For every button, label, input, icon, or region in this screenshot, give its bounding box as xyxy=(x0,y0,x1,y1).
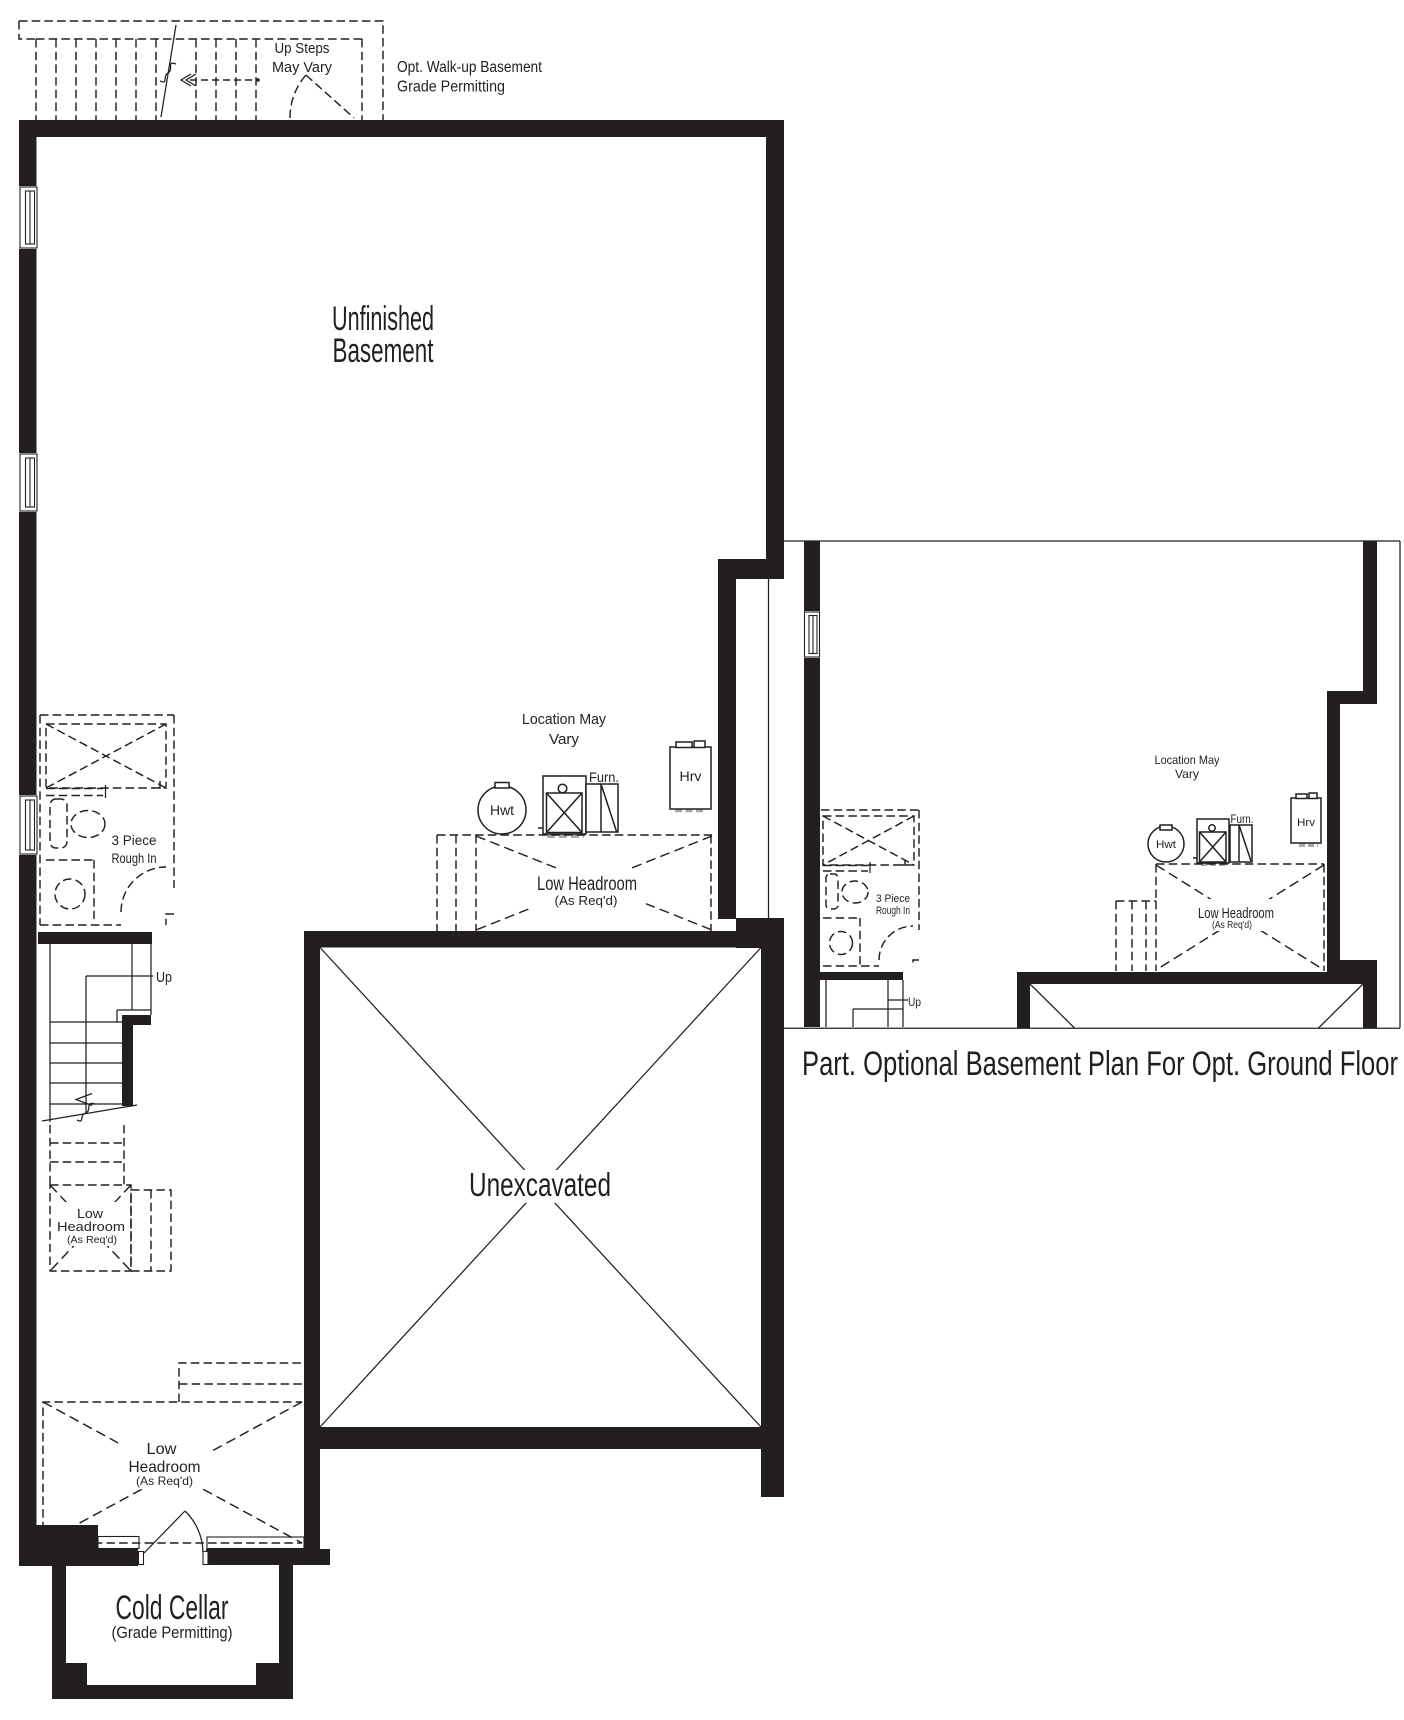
svg-text:Hwt: Hwt xyxy=(490,803,514,818)
svg-text:Unexcavated: Unexcavated xyxy=(469,1166,611,1203)
svg-text:(As Req'd): (As Req'd) xyxy=(555,894,618,908)
svg-text:Opt. Walk-up Basement: Opt. Walk-up Basement xyxy=(397,59,543,76)
svg-text:Location May: Location May xyxy=(1155,753,1220,767)
svg-text:Vary: Vary xyxy=(549,732,580,748)
svg-text:Location May: Location May xyxy=(522,712,607,728)
svg-text:Vary: Vary xyxy=(1175,767,1199,781)
svg-text:(Grade Permitting): (Grade Permitting) xyxy=(112,1623,233,1642)
svg-text:Up: Up xyxy=(156,970,172,986)
svg-text:Up Steps: Up Steps xyxy=(275,40,330,57)
svg-text:Low Headroom: Low Headroom xyxy=(537,874,637,895)
svg-text:Grade Permitting: Grade Permitting xyxy=(397,79,505,96)
svg-text:Part. Optional Basement Plan F: Part. Optional Basement Plan For Opt. Gr… xyxy=(802,1045,1398,1083)
svg-text:Headroom: Headroom xyxy=(57,1219,125,1234)
svg-text:Up: Up xyxy=(908,995,921,1009)
svg-text:Hwt: Hwt xyxy=(1156,839,1176,851)
svg-text:(As Req'd): (As Req'd) xyxy=(136,1474,193,1488)
svg-text:(As Req'd): (As Req'd) xyxy=(1212,920,1252,931)
svg-text:Furn.: Furn. xyxy=(1231,814,1254,826)
svg-text:3 Piece: 3 Piece xyxy=(876,893,910,905)
svg-text:May Vary: May Vary xyxy=(272,59,332,76)
svg-text:Low: Low xyxy=(147,1441,177,1458)
svg-text:Hrv: Hrv xyxy=(1297,817,1316,829)
svg-text:3 Piece: 3 Piece xyxy=(112,832,157,848)
svg-text:Cold Cellar: Cold Cellar xyxy=(116,1589,229,1627)
svg-text:Furn.: Furn. xyxy=(589,769,619,785)
svg-text:Rough In: Rough In xyxy=(876,905,910,917)
svg-text:(As Req'd): (As Req'd) xyxy=(67,1234,117,1246)
svg-text:Hrv: Hrv xyxy=(680,769,702,784)
svg-text:Basement: Basement xyxy=(333,332,434,370)
svg-text:Rough In: Rough In xyxy=(112,850,157,866)
